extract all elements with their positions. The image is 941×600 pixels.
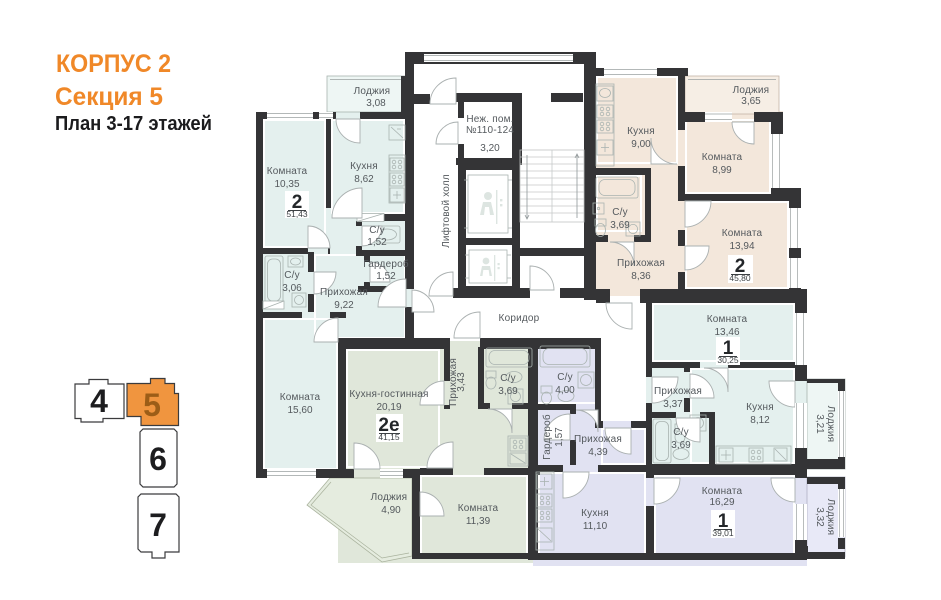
svg-text:16,29: 16,29 xyxy=(709,497,734,508)
svg-text:Прихожая: Прихожая xyxy=(617,258,665,269)
svg-text:1,52: 1,52 xyxy=(376,271,396,282)
svg-text:45,80: 45,80 xyxy=(729,273,751,283)
svg-text:3,37: 3,37 xyxy=(663,399,683,410)
svg-text:КОРПУС 2: КОРПУС 2 xyxy=(56,50,171,78)
svg-text:8,62: 8,62 xyxy=(354,174,374,185)
svg-text:Гардероб: Гардероб xyxy=(363,258,409,270)
svg-text:Лоджия: Лоджия xyxy=(825,406,836,443)
svg-text:6: 6 xyxy=(149,441,167,477)
svg-text:15,60: 15,60 xyxy=(287,405,312,416)
svg-text:39,01: 39,01 xyxy=(712,528,734,538)
svg-text:20,19: 20,19 xyxy=(376,402,401,413)
svg-text:3,65: 3,65 xyxy=(741,96,761,107)
svg-text:3,20: 3,20 xyxy=(480,143,500,154)
svg-text:3,06: 3,06 xyxy=(282,283,302,294)
svg-text:11,10: 11,10 xyxy=(583,521,608,532)
svg-text:1,57: 1,57 xyxy=(554,427,565,447)
svg-text:3,69: 3,69 xyxy=(671,440,691,451)
svg-text:5: 5 xyxy=(143,387,161,423)
svg-text:4,00: 4,00 xyxy=(555,385,575,396)
svg-text:С/у: С/у xyxy=(284,270,300,281)
svg-text:Гардероб: Гардероб xyxy=(541,414,553,460)
svg-text:Лоджия: Лоджия xyxy=(354,86,391,97)
svg-text:8,12: 8,12 xyxy=(750,415,770,426)
svg-text:9,22: 9,22 xyxy=(334,300,354,311)
svg-text:Кухня-гостинная: Кухня-гостинная xyxy=(349,389,428,400)
svg-text:3,69: 3,69 xyxy=(498,386,518,397)
svg-text:Комната: Комната xyxy=(702,486,743,497)
svg-text:Неж. пом.: Неж. пом. xyxy=(466,114,513,125)
svg-text:Комната: Комната xyxy=(722,228,763,239)
svg-text:Кухня: Кухня xyxy=(350,161,378,172)
svg-text:Комната: Комната xyxy=(458,503,499,514)
svg-text:С/у: С/у xyxy=(500,373,516,384)
svg-text:№110-124: №110-124 xyxy=(466,125,515,136)
svg-text:С/у: С/у xyxy=(673,427,689,438)
svg-text:Лоджия: Лоджия xyxy=(825,499,836,536)
svg-text:8,36: 8,36 xyxy=(631,271,651,282)
svg-text:Лоджия: Лоджия xyxy=(733,85,770,96)
svg-text:1,52: 1,52 xyxy=(367,237,387,248)
svg-text:8,99: 8,99 xyxy=(712,165,732,176)
svg-text:Комната: Комната xyxy=(267,166,308,177)
svg-text:План 3-17 этажей: План 3-17 этажей xyxy=(55,113,212,135)
svg-text:13,46: 13,46 xyxy=(714,327,739,338)
svg-text:Кухня: Кухня xyxy=(746,402,774,413)
svg-text:Комната: Комната xyxy=(280,392,321,403)
svg-text:Лоджия: Лоджия xyxy=(371,492,408,503)
svg-text:3,43: 3,43 xyxy=(456,372,467,392)
svg-text:3,69: 3,69 xyxy=(610,220,630,231)
svg-text:11,39: 11,39 xyxy=(466,516,491,527)
svg-text:3,32: 3,32 xyxy=(814,507,825,527)
svg-text:3,21: 3,21 xyxy=(814,414,825,434)
svg-text:С/у: С/у xyxy=(612,207,628,218)
svg-text:30,25: 30,25 xyxy=(717,355,739,365)
svg-text:С/у: С/у xyxy=(557,372,573,383)
svg-text:41,15: 41,15 xyxy=(378,432,400,442)
svg-text:Комната: Комната xyxy=(707,314,748,325)
svg-text:С/у: С/у xyxy=(369,225,385,236)
svg-text:7: 7 xyxy=(149,507,167,543)
svg-text:51,43: 51,43 xyxy=(286,209,308,219)
svg-text:4: 4 xyxy=(90,383,108,419)
svg-text:9,00: 9,00 xyxy=(631,139,651,150)
svg-text:Секция 5: Секция 5 xyxy=(55,83,163,111)
svg-text:Кухня: Кухня xyxy=(627,126,655,137)
svg-text:Прихожая: Прихожая xyxy=(654,386,702,397)
svg-text:4,90: 4,90 xyxy=(381,505,401,516)
svg-text:3,08: 3,08 xyxy=(366,98,386,109)
svg-text:4,39: 4,39 xyxy=(588,447,608,458)
svg-text:Прихожая: Прихожая xyxy=(320,287,368,298)
svg-text:Кухня: Кухня xyxy=(581,508,609,519)
svg-text:13,94: 13,94 xyxy=(729,241,754,252)
svg-text:10,35: 10,35 xyxy=(274,179,299,190)
svg-text:Коридор: Коридор xyxy=(499,313,540,324)
svg-text:Прихожая: Прихожая xyxy=(574,434,622,445)
svg-text:Комната: Комната xyxy=(702,152,743,163)
svg-text:Лифтовой холл: Лифтовой холл xyxy=(440,174,452,248)
